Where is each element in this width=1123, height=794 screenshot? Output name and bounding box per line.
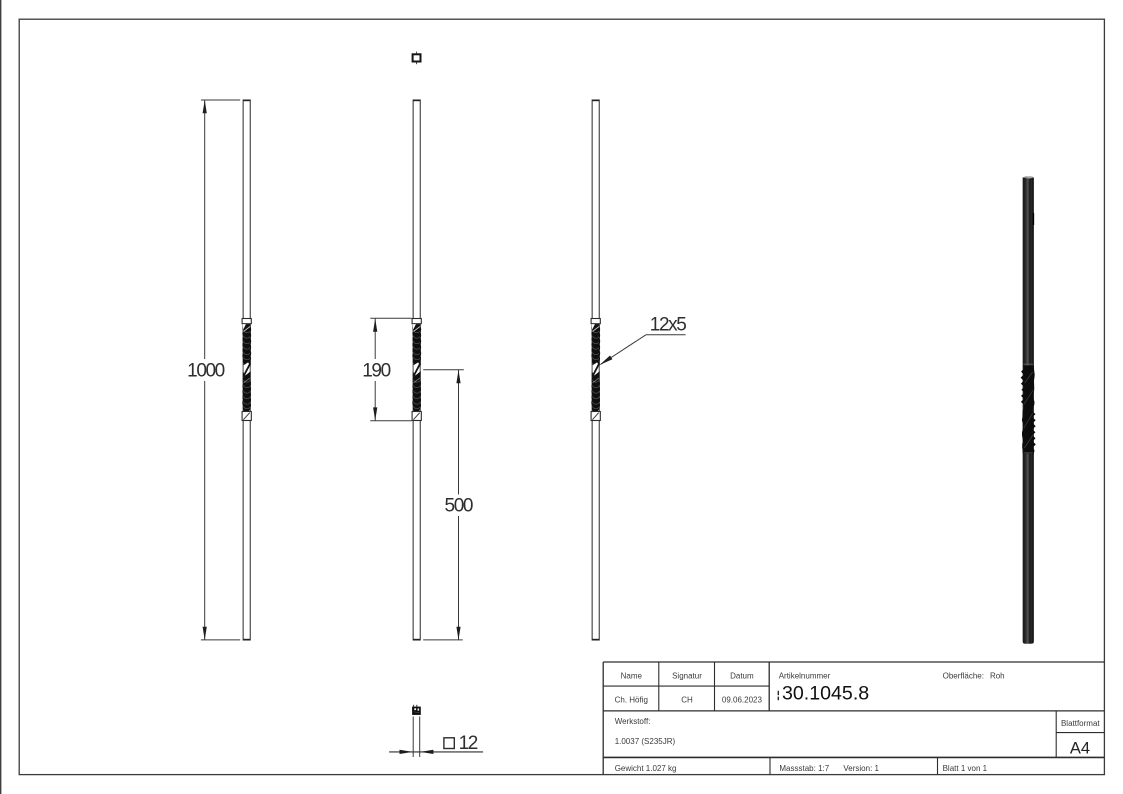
svg-text:30.1045.8: 30.1045.8 bbox=[782, 682, 869, 704]
svg-text:12x5: 12x5 bbox=[650, 314, 686, 335]
svg-text:1.0037 (S235JR): 1.0037 (S235JR) bbox=[615, 737, 676, 746]
svg-text:Gewicht 1.027 kg: Gewicht 1.027 kg bbox=[615, 764, 677, 773]
svg-text:CH: CH bbox=[681, 695, 693, 704]
svg-text:Signatur: Signatur bbox=[672, 672, 702, 681]
svg-text:Ch. Höfig: Ch. Höfig bbox=[615, 695, 648, 704]
svg-text:Werkstoff:: Werkstoff: bbox=[615, 717, 651, 726]
svg-text:Oberfläche:Roh: Oberfläche:Roh bbox=[943, 671, 1005, 680]
svg-text:Blatt 1 von 1: Blatt 1 von 1 bbox=[943, 764, 988, 773]
svg-text:1000: 1000 bbox=[187, 360, 225, 381]
svg-text:Name: Name bbox=[621, 672, 643, 681]
svg-text:A4: A4 bbox=[1070, 739, 1090, 757]
svg-text:12: 12 bbox=[459, 733, 478, 754]
svg-text:500: 500 bbox=[445, 496, 473, 517]
svg-text:190: 190 bbox=[362, 360, 390, 381]
svg-text:Artikelnummer: Artikelnummer bbox=[779, 671, 831, 680]
svg-text:Version: 1: Version: 1 bbox=[843, 764, 879, 773]
svg-text:Datum: Datum bbox=[730, 672, 754, 681]
svg-text:09.06.2023: 09.06.2023 bbox=[722, 695, 763, 704]
svg-text:Blattformat: Blattformat bbox=[1061, 719, 1100, 728]
svg-text:Massstab: 1:7: Massstab: 1:7 bbox=[779, 764, 829, 773]
